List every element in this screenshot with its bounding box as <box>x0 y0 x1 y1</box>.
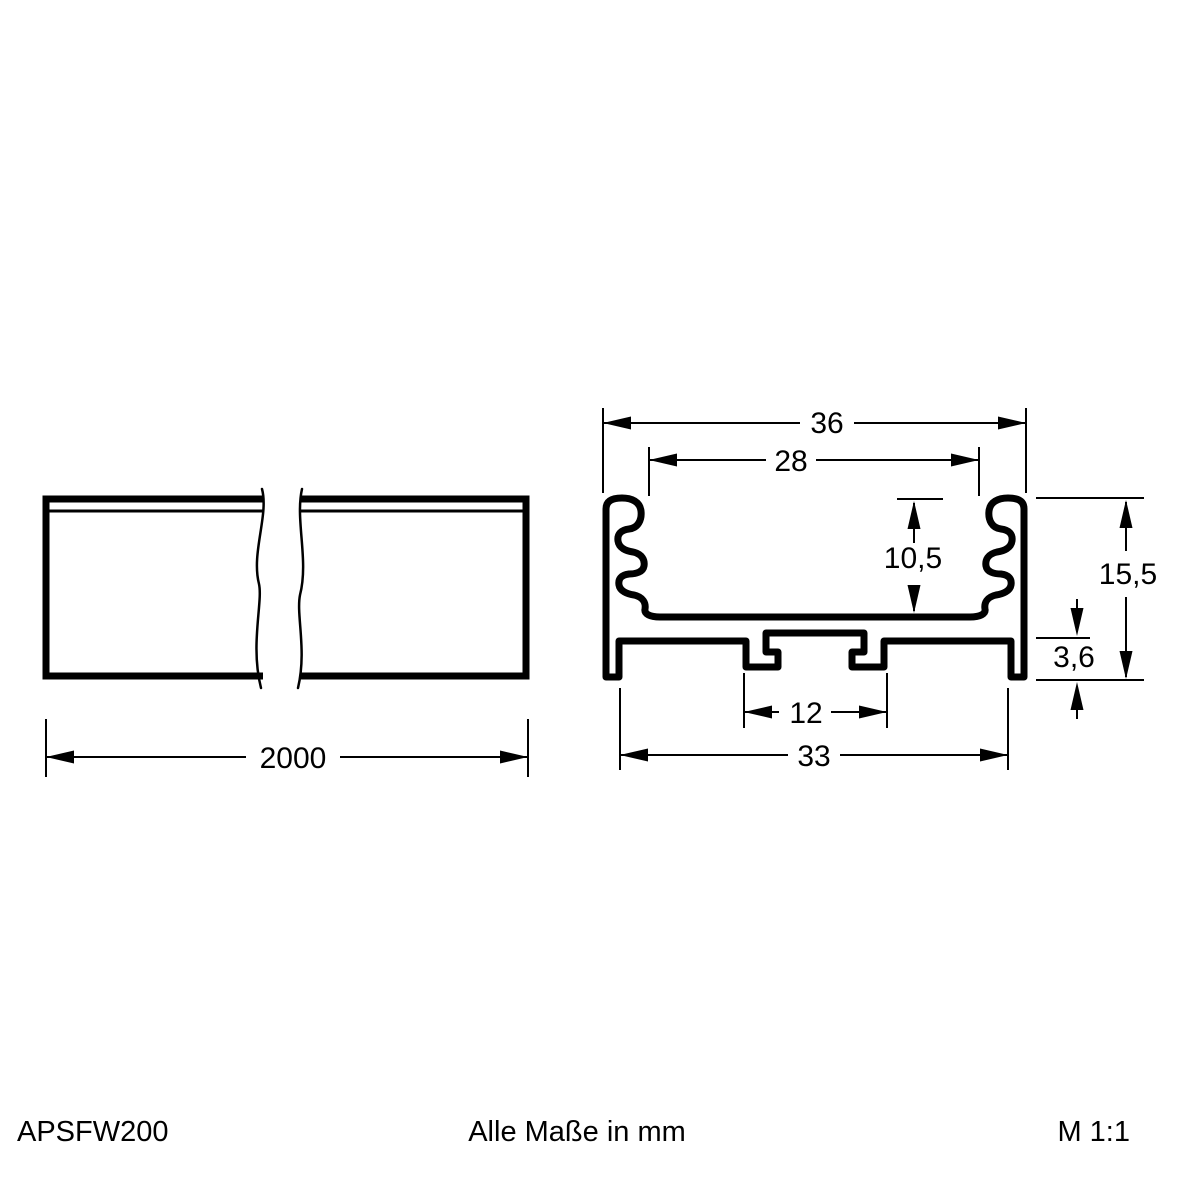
dim-length-arrow-left <box>46 751 74 764</box>
product-code: APSFW200 <box>17 1116 169 1148</box>
dim-length-arrow-right <box>500 751 528 764</box>
footer: APSFW200 Alle Maße in mm M 1:1 <box>17 1116 1130 1148</box>
dim-outer-width-label: 36 <box>810 407 843 440</box>
dim-bottom-width-arrow-right <box>980 749 1008 762</box>
dim-inner-width <box>649 447 979 496</box>
units-note: Alle Maße in mm <box>468 1116 686 1148</box>
break-line-left <box>256 489 263 688</box>
dim-inner-depth-arrow-top <box>908 501 921 529</box>
dim-total-height-arrow-top <box>1120 500 1133 528</box>
dim-inner-depth-arrow-bottom <box>908 585 921 613</box>
dim-inner-width-label: 28 <box>774 445 807 478</box>
cross-section-profile-outline <box>606 498 1024 677</box>
dim-inner-width-arrow-right <box>951 454 979 467</box>
dim-inner-width-arrow-left <box>649 454 677 467</box>
break-gap <box>263 485 301 690</box>
cross-section: 36 28 10,5 15,5 <box>603 407 1157 773</box>
dim-slot-width-arrow-left <box>744 706 772 719</box>
dim-base-height-arrow-top <box>1071 608 1084 636</box>
dim-outer-width-arrow-left <box>603 417 631 430</box>
profile-drawing: 2000 36 28 10,5 <box>0 0 1181 1181</box>
side-view <box>46 485 526 690</box>
dim-inner-width-extension-lines <box>649 447 979 496</box>
dim-inner-depth-label: 10,5 <box>884 542 942 575</box>
drawing-scale: M 1:1 <box>1057 1116 1130 1148</box>
dim-bottom-width-label: 33 <box>797 740 830 773</box>
dim-total-height-arrow-bottom <box>1120 651 1133 679</box>
dim-bottom-width-arrow-left <box>620 749 648 762</box>
dim-slot-width-label: 12 <box>789 697 822 730</box>
dim-slot-width-arrow-right <box>859 706 887 719</box>
dim-total-height-label: 15,5 <box>1099 558 1157 591</box>
dim-length-label: 2000 <box>260 742 327 775</box>
dim-outer-width-arrow-right <box>998 417 1026 430</box>
dim-base-height-label: 3,6 <box>1053 641 1095 674</box>
dim-base-height-arrow-bottom <box>1071 682 1084 710</box>
technical-drawing-page: 2000 36 28 10,5 <box>0 0 1181 1181</box>
